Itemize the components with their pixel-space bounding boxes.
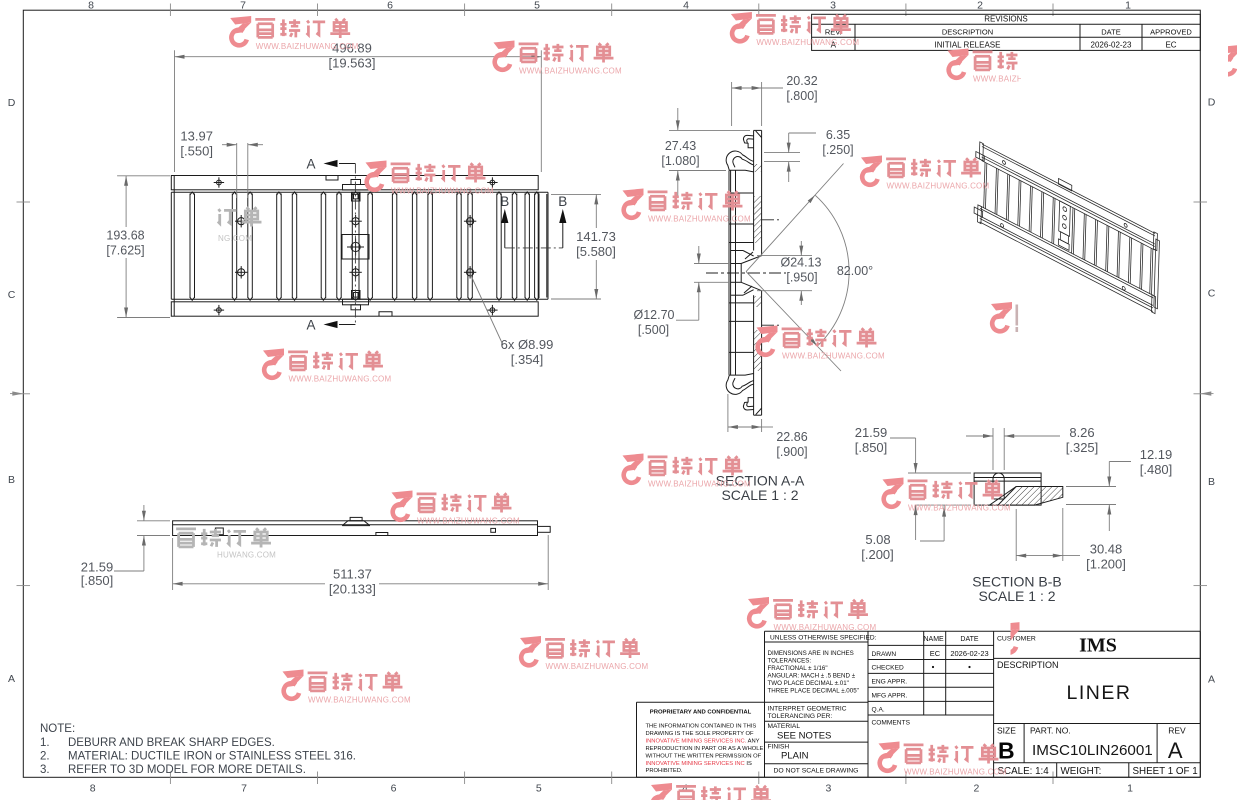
svg-text:SEE NOTES: SEE NOTES (777, 731, 831, 742)
svg-text:[.900]: [.900] (776, 445, 807, 459)
svg-text:INTERPRET GEOMETRIC: INTERPRET GEOMETRIC (768, 706, 847, 713)
svg-text:3.: 3. (40, 764, 50, 776)
svg-text:D: D (1208, 97, 1216, 109)
svg-text:1: 1 (1125, 0, 1131, 12)
svg-text:8.26: 8.26 (1069, 425, 1094, 440)
svg-text:[.550]: [.550] (180, 144, 213, 159)
svg-text:[1.080]: [1.080] (661, 154, 699, 168)
svg-text:7: 7 (240, 0, 246, 12)
svg-text:[5.580]: [5.580] (576, 244, 616, 259)
svg-text:A: A (306, 157, 315, 172)
svg-text:511.37: 511.37 (333, 567, 372, 582)
svg-text:82.00°: 82.00° (837, 264, 873, 278)
svg-text:[19.563]: [19.563] (329, 56, 376, 71)
svg-text:[.354]: [.354] (511, 352, 544, 367)
svg-text:2: 2 (973, 783, 979, 795)
svg-text:C: C (1208, 288, 1216, 300)
svg-text:DESCRIPTION: DESCRIPTION (997, 660, 1059, 670)
svg-text:2.: 2. (40, 750, 50, 762)
svg-text:FRACTIONAL ± 1/16": FRACTIONAL ± 1/16" (768, 665, 828, 672)
svg-text:PART. NO.: PART. NO. (1030, 726, 1071, 736)
svg-text:DATE: DATE (960, 636, 978, 643)
svg-text:CUSTOMER: CUSTOMER (997, 636, 1036, 643)
svg-text:193.68: 193.68 (106, 229, 144, 243)
svg-text:NAME: NAME (923, 636, 944, 643)
svg-text:WITHOUT THE WRITTEN PERMISSION: WITHOUT THE WRITTEN PERMISSION OF (646, 753, 762, 759)
svg-text:DIMENSIONS ARE IN INCHES: DIMENSIONS ARE IN INCHES (768, 650, 854, 657)
svg-text:3: 3 (825, 783, 831, 795)
svg-text:REPRODUCTION IN PART OR AS A W: REPRODUCTION IN PART OR AS A WHOLE (646, 746, 764, 752)
svg-text:13.97: 13.97 (180, 129, 213, 144)
svg-text:LINER: LINER (1067, 682, 1132, 704)
svg-text:6x Ø8.99: 6x Ø8.99 (501, 337, 554, 352)
svg-text:[.500]: [.500] (638, 323, 669, 337)
svg-text:DRAWN: DRAWN (872, 651, 897, 658)
svg-text:INNOVATIVE MINING SERVICES INC: INNOVATIVE MINING SERVICES INC IS (646, 761, 752, 767)
svg-text:8: 8 (88, 0, 94, 12)
svg-text:DEBURR AND BREAK SHARP EDGES.: DEBURR AND BREAK SHARP EDGES. (68, 737, 275, 749)
svg-text:1: 1 (1127, 783, 1133, 795)
svg-text:A: A (1208, 674, 1215, 686)
svg-text:[1.200]: [1.200] (1086, 557, 1126, 572)
svg-text:ENG APPR.: ENG APPR. (872, 679, 908, 686)
svg-text:4: 4 (682, 783, 688, 795)
svg-text:ANGULAR: MACH ± .5 BEND ±: ANGULAR: MACH ± .5 BEND ± (768, 673, 856, 680)
svg-text:INITIAL RELEASE: INITIAL RELEASE (935, 40, 1001, 49)
svg-text:A: A (306, 318, 315, 333)
svg-text:5.08: 5.08 (865, 532, 890, 547)
svg-text:6: 6 (387, 0, 393, 12)
svg-text:C: C (8, 289, 16, 301)
svg-text:MATERIAL: DUCTILE IRON or STAI: MATERIAL: DUCTILE IRON or STAINLESS STEE… (68, 750, 356, 762)
svg-text:141.73: 141.73 (576, 229, 616, 244)
svg-text:EC: EC (930, 649, 941, 658)
svg-text:FINISH: FINISH (768, 744, 790, 751)
svg-text:PROPRIETARY AND CONFIDENTIAL: PROPRIETARY AND CONFIDENTIAL (650, 710, 752, 716)
svg-text:THE INFORMATION CONTAINED IN T: THE INFORMATION CONTAINED IN THIS (646, 723, 757, 729)
svg-text:5: 5 (536, 783, 542, 795)
svg-text:8: 8 (90, 783, 96, 795)
svg-text:APPROVED: APPROVED (1150, 27, 1192, 36)
svg-text:[.800]: [.800] (786, 89, 817, 103)
svg-text:Q.A.: Q.A. (872, 707, 885, 714)
svg-text:4: 4 (683, 0, 689, 12)
svg-text:Ø12.70: Ø12.70 (633, 308, 674, 322)
svg-text:27.43: 27.43 (665, 139, 696, 153)
svg-text:TOLERANCES:: TOLERANCES: (768, 658, 812, 665)
svg-text:[.950]: [.950] (786, 271, 817, 285)
svg-text:[.850]: [.850] (81, 573, 114, 588)
svg-text:1.: 1. (40, 737, 50, 749)
svg-text:EC: EC (1165, 40, 1176, 49)
svg-text:7: 7 (241, 783, 247, 795)
svg-text:2: 2 (977, 0, 983, 12)
svg-text:NOTE:: NOTE: (40, 723, 75, 735)
svg-text:INNOVATIVE MINING SERVICES INC: INNOVATIVE MINING SERVICES INC. ANY (646, 739, 760, 745)
svg-text:5: 5 (534, 0, 540, 12)
svg-text:[7.625]: [7.625] (106, 244, 144, 258)
svg-text:6: 6 (391, 783, 397, 795)
svg-text:TWO PLACE DECIMAL ±.01": TWO PLACE DECIMAL ±.01" (768, 680, 849, 687)
svg-text:IMS: IMS (1079, 635, 1117, 657)
svg-text:22.86: 22.86 (776, 430, 807, 444)
svg-text:REV: REV (1168, 726, 1186, 736)
svg-text:[.325]: [.325] (1066, 440, 1099, 455)
svg-text:NG.COM: NG.COM (218, 234, 252, 243)
svg-text:MFG APPR.: MFG APPR. (872, 693, 908, 700)
svg-text:[.200]: [.200] (861, 547, 894, 562)
svg-text:6.35: 6.35 (826, 128, 850, 142)
svg-text:[.480]: [.480] (1140, 462, 1173, 477)
svg-text:D: D (8, 97, 16, 109)
svg-text:HUWANG.COM: HUWANG.COM (217, 551, 276, 560)
svg-text:A: A (1168, 738, 1184, 763)
svg-text:REVISIONS: REVISIONS (984, 15, 1028, 24)
svg-text:MATERIAL: MATERIAL (768, 723, 801, 730)
svg-text:CHECKED: CHECKED (872, 665, 904, 672)
svg-text:SCALE 1 : 2: SCALE 1 : 2 (978, 588, 1055, 604)
svg-text:DO NOT SCALE DRAWING: DO NOT SCALE DRAWING (774, 768, 859, 775)
svg-text:DRAWING IS THE SOLE PROPERTY O: DRAWING IS THE SOLE PROPERTY OF (646, 731, 754, 737)
svg-text:REFER TO 3D MODEL FOR MORE DET: REFER TO 3D MODEL FOR MORE DETAILS. (68, 764, 306, 776)
svg-text:2026-02-23: 2026-02-23 (950, 649, 988, 658)
svg-text:SHEET 1 OF 1: SHEET 1 OF 1 (1133, 766, 1198, 777)
svg-text:THREE PLACE DECIMAL ±.005": THREE PLACE DECIMAL ±.005" (768, 688, 859, 695)
svg-text:20.32: 20.32 (786, 74, 817, 88)
svg-text:PLAIN: PLAIN (781, 751, 809, 762)
svg-text:3: 3 (830, 0, 836, 12)
svg-text:PROHIBITED.: PROHIBITED. (646, 768, 683, 774)
svg-text:[.250]: [.250] (822, 143, 853, 157)
svg-text:30.48: 30.48 (1090, 542, 1123, 557)
svg-text:SIZE: SIZE (997, 726, 1016, 736)
svg-text:DATE: DATE (1101, 27, 1120, 36)
svg-text:12.19: 12.19 (1140, 447, 1173, 462)
svg-text:TOLERANCING PER:: TOLERANCING PER: (768, 713, 833, 720)
svg-text:UNLESS OTHERWISE SPECIFIED:: UNLESS OTHERWISE SPECIFIED: (770, 635, 877, 642)
svg-text:IMSC10LIN26001: IMSC10LIN26001 (1032, 742, 1153, 759)
svg-text:B: B (8, 474, 15, 486)
svg-text:B: B (1208, 476, 1215, 488)
svg-text:SCALE 1 : 2: SCALE 1 : 2 (721, 487, 798, 503)
svg-text:21.59: 21.59 (855, 425, 888, 440)
svg-text:[.850]: [.850] (855, 440, 888, 455)
svg-text:Ø24.13: Ø24.13 (780, 256, 821, 270)
svg-text:DESCRIPTION: DESCRIPTION (942, 27, 993, 36)
svg-text:COMMENTS: COMMENTS (872, 720, 911, 727)
svg-text:[20.133]: [20.133] (329, 582, 376, 597)
svg-text:B: B (558, 194, 567, 209)
svg-text:B: B (500, 194, 509, 209)
svg-text:B: B (998, 738, 1015, 764)
svg-text:2026-02-23: 2026-02-23 (1091, 40, 1132, 49)
svg-text:WEIGHT:: WEIGHT: (1061, 766, 1102, 777)
svg-text:A: A (8, 673, 15, 685)
